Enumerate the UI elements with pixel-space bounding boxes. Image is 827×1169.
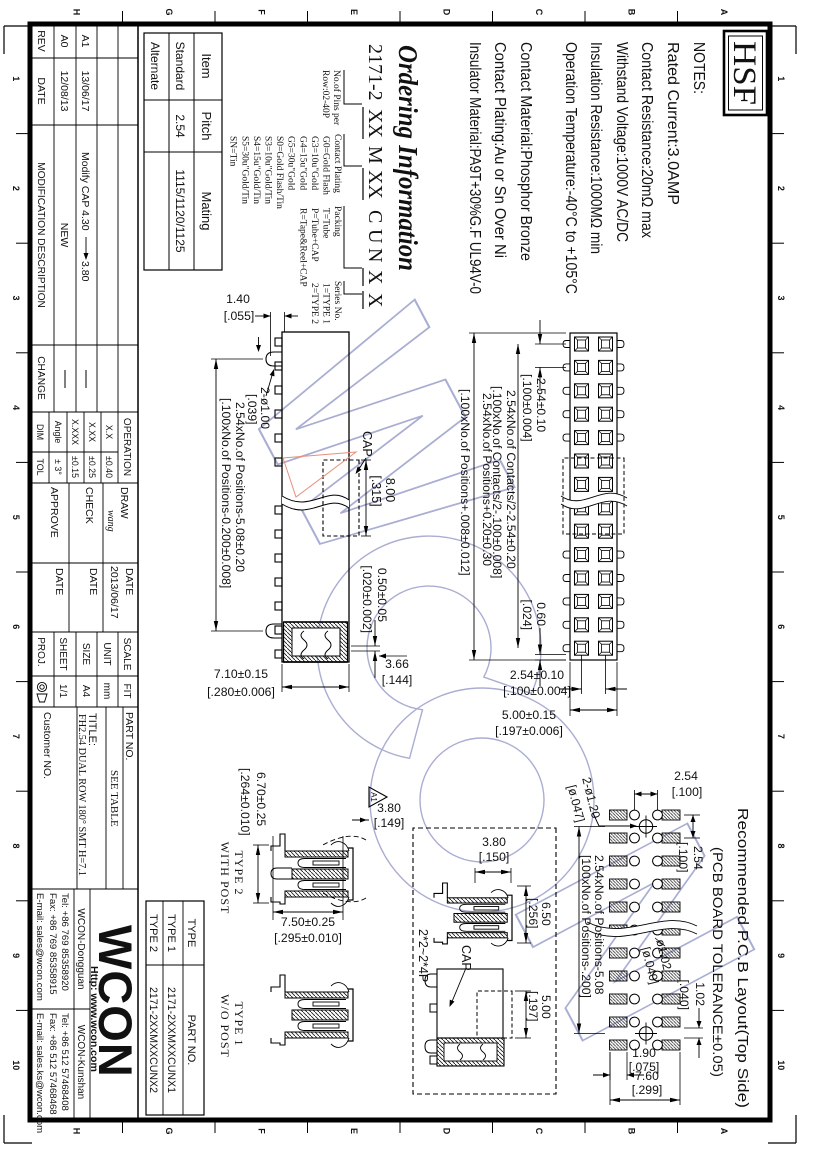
svg-text:Insulation Resistance:1000MΩ: Insulation Resistance:1000MΩ min: [587, 42, 604, 254]
svg-text:10: 10: [776, 1060, 786, 1070]
svg-text:7: 7: [776, 734, 786, 739]
svg-text:E: E: [349, 9, 359, 15]
svg-text:CHECK: CHECK: [83, 487, 95, 524]
svg-text:DRAW: DRAW: [118, 487, 130, 519]
svg-text:Packing: Packing: [332, 206, 342, 237]
svg-text:TYPE 1: TYPE 1: [165, 914, 177, 952]
svg-text:DATE: DATE: [35, 77, 47, 104]
svg-text:8: 8: [776, 843, 786, 848]
svg-text:±0.25: ±0.25: [87, 456, 97, 478]
svg-text:[.315]: [.315]: [369, 475, 383, 506]
svg-text:U: U: [364, 229, 386, 244]
svg-text:Standard: Standard: [173, 42, 187, 91]
svg-text:3.66: 3.66: [385, 657, 409, 671]
svg-text:CAP: CAP: [459, 945, 473, 971]
svg-text:[.100xNo.of Positions+.008±0.: [.100xNo.of Positions+.008±0.012]: [458, 389, 472, 576]
svg-text:TYPE: TYPE: [185, 919, 197, 948]
svg-text:7.10±0.15: 7.10±0.15: [214, 667, 268, 681]
svg-text:1.40: 1.40: [226, 292, 250, 306]
svg-text:R=Tape&Reel+CAP: R=Tape&Reel+CAP: [298, 208, 308, 287]
svg-text:[.264±0.010]: [.264±0.010]: [238, 768, 252, 836]
svg-text:2.54xNo.of Positions+0.20±0.3: 2.54xNo.of Positions+0.20±0.30: [480, 393, 494, 566]
svg-text:±0.15: ±0.15: [70, 456, 80, 478]
svg-text:Contact Plating:Au or Sn O: Contact Plating:Au or Sn Over Ni: [491, 42, 508, 258]
svg-text:[.100]: [.100]: [676, 842, 690, 873]
svg-text:[.020±0.002]: [.020±0.002]: [360, 565, 374, 633]
svg-text:13/06/17: 13/06/17: [79, 71, 91, 112]
svg-text:G: G: [164, 1127, 174, 1134]
svg-text:[.100±0.004]: [.100±0.004]: [520, 374, 534, 442]
svg-text:8: 8: [11, 843, 21, 848]
svg-text:S0=Gold Flash/Tin: S0=Gold Flash/Tin: [274, 136, 284, 209]
svg-text:C: C: [534, 1128, 544, 1135]
svg-text:6.50: 6.50: [539, 902, 553, 926]
svg-text:E-mail: sales@wcon.com: E-mail: sales@wcon.com: [34, 893, 45, 1001]
svg-text:X.X: X.X: [104, 425, 114, 439]
svg-text:B: B: [626, 9, 636, 16]
svg-text:3.80: 3.80: [482, 835, 506, 849]
svg-text:NOTES:: NOTES:: [690, 42, 707, 94]
svg-text:FH2.54 DUAL ROW 180° SMT H=7.1: FH2.54 DUAL ROW 180° SMT H=7.1: [76, 714, 88, 876]
svg-text:0.60: 0.60: [534, 602, 548, 626]
svg-text:F: F: [256, 1128, 266, 1134]
svg-text:[100xNo.of Positions-.200]: [100xNo.of Positions-.200]: [579, 855, 593, 998]
svg-text:S4=15u"Gold/Tin: S4=15u"Gold/Tin: [251, 136, 261, 204]
svg-text:2.54xNo.of Contacts/2-2.54±0.: 2.54xNo.of Contacts/2-2.54±0.20: [504, 390, 518, 569]
svg-text:[.150]: [.150]: [479, 850, 510, 864]
svg-text:3: 3: [11, 295, 21, 300]
svg-text:[.280±0.006]: [.280±0.006]: [207, 685, 275, 699]
svg-text:[.295±0.010]: [.295±0.010]: [274, 931, 342, 945]
svg-text:5: 5: [11, 515, 21, 520]
svg-text:±0.40: ±0.40: [104, 456, 114, 478]
svg-text:E-mail: sales.ks@wcon.com: E-mail: sales.ks@wcon.com: [34, 1013, 45, 1133]
svg-text:Pitch: Pitch: [199, 112, 214, 141]
svg-text:CHANGE: CHANGE: [35, 356, 46, 400]
svg-text:4: 4: [776, 405, 786, 410]
svg-text:1: 1: [11, 76, 21, 81]
svg-text:S5=30u"Gold/Tin: S5=30u"Gold/Tin: [239, 136, 249, 204]
svg-text:S3=10u"Gold/Tin: S3=10u"Gold/Tin: [263, 136, 273, 204]
svg-text:Angle: Angle: [53, 421, 63, 444]
svg-text:[.024]: [.024]: [520, 600, 534, 631]
svg-text:wang: wang: [105, 510, 116, 532]
svg-text:2.54xNo.of Positions-5.08±0.2: 2.54xNo.of Positions-5.08±0.20: [233, 402, 247, 572]
svg-text:SIZE: SIZE: [80, 643, 91, 666]
svg-text:X.XX: X.XX: [87, 422, 97, 442]
svg-text:3.80: 3.80: [377, 801, 401, 815]
svg-text:[.055]: [.055]: [224, 309, 255, 323]
svg-text:0.50±0.05: 0.50±0.05: [375, 568, 389, 622]
svg-text:12/08/13: 12/08/13: [58, 71, 70, 112]
svg-text:[.040]: [.040]: [677, 980, 691, 1011]
svg-text:M: M: [364, 146, 386, 164]
svg-text:6.70±0.25: 6.70±0.25: [254, 772, 268, 826]
svg-text:H: H: [71, 9, 81, 16]
svg-text:A0: A0: [58, 35, 70, 48]
svg-text:Fax: +86 769 85358915: Fax: +86 769 85358915: [47, 893, 58, 995]
svg-text:3.80: 3.80: [79, 261, 91, 282]
svg-text:2-ø1.00: 2-ø1.00: [258, 387, 272, 429]
svg-text:D: D: [441, 9, 451, 16]
svg-text:7.50±0.25: 7.50±0.25: [281, 915, 335, 929]
svg-text:7: 7: [11, 734, 21, 739]
svg-text:2171-2XXMXXCUNX2: 2171-2XXMXXCUNX2: [147, 987, 159, 1093]
svg-text:2.54: 2.54: [173, 114, 187, 138]
svg-text:Recommended P.C.B Layout(Top: Recommended P.C.B Layout(Top Side): [734, 808, 750, 1108]
svg-text:Contact Resistance:20mΩ max: Contact Resistance:20mΩ max: [638, 42, 655, 238]
svg-text:TOL: TOL: [35, 459, 45, 476]
svg-text:1: 1: [776, 76, 786, 81]
svg-text:G5=30u"Gold: G5=30u"Gold: [286, 136, 296, 190]
svg-text:7.60: 7.60: [635, 1069, 659, 1083]
svg-text:No.of Pins per: No.of Pins per: [331, 70, 342, 126]
svg-text:Tel: +86 512 57468408: Tel: +86 512 57468408: [59, 1013, 70, 1111]
svg-text:D: D: [441, 1128, 451, 1135]
svg-text:6: 6: [11, 624, 21, 629]
svg-text:HSF: HSF: [726, 41, 762, 105]
svg-text:Modify CAP 4.30: Modify CAP 4.30: [79, 152, 91, 231]
svg-text:3: 3: [776, 295, 786, 300]
svg-text:Contact Material:Phosphor Br: Contact Material:Phosphor Bronze: [517, 42, 534, 261]
svg-text:1=TYPE 1: 1=TYPE 1: [321, 283, 331, 324]
svg-text:2171-2XXMXXCUNX1: 2171-2XXMXXCUNX1: [165, 987, 177, 1093]
svg-text:PART NO.: PART NO.: [185, 1015, 197, 1066]
svg-text:DATE: DATE: [123, 568, 135, 595]
svg-text:2.54±0.10: 2.54±0.10: [534, 378, 548, 432]
svg-text:XX: XX: [364, 109, 386, 138]
svg-text:Customer NO.: Customer NO.: [41, 712, 53, 779]
svg-text:8.00: 8.00: [383, 478, 397, 502]
svg-text:1.90: 1.90: [632, 1046, 656, 1060]
svg-text:Alternate: Alternate: [148, 42, 162, 90]
svg-text:XX: XX: [364, 170, 386, 199]
svg-text:A1: A1: [79, 35, 91, 48]
svg-text:WITH POST: WITH POST: [218, 842, 232, 915]
svg-text:2.54±0.10: 2.54±0.10: [510, 668, 564, 682]
svg-text:SN=Tin: SN=Tin: [228, 136, 238, 167]
svg-text:5.00±0.15: 5.00±0.15: [502, 708, 556, 722]
svg-text:[.100]: [.100]: [672, 785, 703, 799]
svg-text:F: F: [256, 9, 266, 15]
svg-text:[.144]: [.144]: [382, 673, 413, 687]
svg-text:REV: REV: [35, 30, 47, 52]
svg-text:Insulator Material:PA9T+30%G.: Insulator Material:PA9T+30%G.F UL94V-0: [466, 42, 483, 294]
svg-text:X: X: [364, 270, 386, 285]
svg-text:FIT: FIT: [121, 684, 132, 699]
svg-text:± 3°: ± 3°: [53, 459, 63, 475]
svg-text:B: B: [626, 1128, 636, 1135]
svg-text:A: A: [719, 9, 729, 16]
svg-text:E: E: [349, 1128, 359, 1134]
svg-text:DATE: DATE: [87, 568, 99, 595]
svg-text:CAP: CAP: [360, 431, 374, 457]
svg-text:SEE TABLE: SEE TABLE: [108, 770, 120, 827]
svg-text:[.149]: [.149]: [374, 816, 405, 830]
svg-text:A4: A4: [80, 685, 91, 698]
svg-text:NEW: NEW: [58, 223, 70, 248]
svg-text:H: H: [71, 1128, 81, 1135]
svg-text:1.02: 1.02: [693, 982, 707, 1006]
svg-text:Operation Temperature:-40°C: Operation Temperature:-40°C to +105°C: [562, 42, 579, 294]
svg-text:Withstand Voltage:1000V AC/D: Withstand Voltage:1000V AC/DC: [613, 42, 630, 242]
svg-text:4: 4: [11, 405, 21, 410]
svg-text:mm: mm: [101, 683, 112, 700]
svg-text:2013/06/17: 2013/06/17: [108, 566, 120, 619]
svg-text:SCALE: SCALE: [121, 638, 132, 671]
svg-text:10: 10: [11, 1060, 21, 1070]
svg-text:WCON-Dongguan: WCON-Dongguan: [75, 908, 86, 989]
svg-text:5: 5: [776, 515, 786, 520]
svg-text:PROJ.: PROJ.: [35, 637, 46, 666]
svg-text:G: G: [164, 8, 174, 15]
svg-text:DIM: DIM: [35, 424, 45, 440]
svg-text:Tel: +86 769 85358920: Tel: +86 769 85358920: [59, 893, 70, 991]
svg-text:WCON-Kunshan: WCON-Kunshan: [75, 1025, 86, 1099]
svg-text:2.54xNo.of Positions-5.08: 2.54xNo.of Positions-5.08: [592, 855, 606, 995]
svg-text:2: 2: [11, 186, 21, 191]
svg-text:N: N: [364, 248, 386, 262]
svg-text:Rated Current:3.0AMP: Rated Current:3.0AMP: [664, 42, 681, 205]
svg-text:X.XXX: X.XXX: [70, 419, 80, 445]
svg-text:9: 9: [11, 953, 21, 958]
svg-text:2.54: 2.54: [674, 769, 698, 783]
svg-text:Series No.: Series No.: [332, 281, 342, 321]
svg-text:OPERATION: OPERATION: [121, 418, 132, 476]
svg-text:PART NO.: PART NO.: [123, 712, 135, 760]
svg-text:[.299]: [.299]: [632, 1083, 663, 1097]
svg-text:2.54: 2.54: [691, 846, 705, 870]
svg-text:TYPE 1: TYPE 1: [232, 1002, 246, 1047]
svg-text:G0=Gold Flash: G0=Gold Flash: [321, 136, 331, 195]
svg-text:P=Tube+CAP: P=Tube+CAP: [309, 208, 319, 262]
svg-text:2=TYPE 2: 2=TYPE 2: [309, 283, 319, 324]
svg-text:[.256]: [.256]: [526, 898, 540, 929]
svg-text:1115/1120/1125: 1115/1120/1125: [173, 169, 187, 253]
svg-text:[.100±0.004]: [.100±0.004]: [503, 684, 571, 698]
svg-text:TYPE 2: TYPE 2: [147, 914, 159, 952]
svg-text:Contact Plating: Contact Plating: [332, 134, 342, 193]
svg-text:9: 9: [776, 953, 786, 958]
svg-text:W/O POST: W/O POST: [218, 994, 232, 1058]
svg-text:APPROVE: APPROVE: [48, 487, 60, 538]
svg-text:T=Tube: T=Tube: [321, 208, 331, 238]
svg-text:2: 2: [776, 186, 786, 191]
svg-text:SHEET: SHEET: [57, 637, 68, 670]
svg-text:5.00: 5.00: [539, 995, 553, 1019]
svg-text:C: C: [364, 210, 386, 223]
svg-text:[.100xNo.of Positions-0.200±0: [.100xNo.of Positions-0.200±0.008]: [219, 398, 233, 588]
svg-text:Item: Item: [199, 53, 214, 78]
svg-text:UNIT: UNIT: [101, 642, 112, 665]
svg-text:[.197±0.006]: [.197±0.006]: [495, 724, 563, 738]
svg-text:G4=15u"Gold: G4=15u"Gold: [297, 136, 307, 190]
svg-text:[.197]: [.197]: [526, 991, 540, 1022]
svg-text:Fax: +86 512 57468468: Fax: +86 512 57468468: [47, 1013, 58, 1115]
svg-text:2171-2: 2171-2: [364, 44, 386, 101]
svg-text:1/1: 1/1: [57, 684, 68, 698]
svg-text:Row:02-40P: Row:02-40P: [320, 70, 330, 118]
svg-text:G3=10u"Gold: G3=10u"Gold: [309, 136, 319, 190]
svg-text:(PCB BOARD TOLERANCE±0.05): (PCB BOARD TOLERANCE±0.05): [710, 847, 725, 1077]
svg-text:Mating: Mating: [199, 191, 214, 230]
svg-text:MODIFICATION DESCRIPTION: MODIFICATION DESCRIPTION: [35, 162, 46, 308]
svg-text:Ordering Information: Ordering Information: [393, 45, 423, 271]
svg-text:X: X: [364, 293, 386, 308]
svg-text:TYPE 2: TYPE 2: [232, 851, 246, 896]
svg-text:DATE: DATE: [53, 568, 65, 595]
svg-text:C: C: [534, 9, 544, 16]
svg-text:6: 6: [776, 624, 786, 629]
svg-text:A: A: [719, 1128, 729, 1135]
